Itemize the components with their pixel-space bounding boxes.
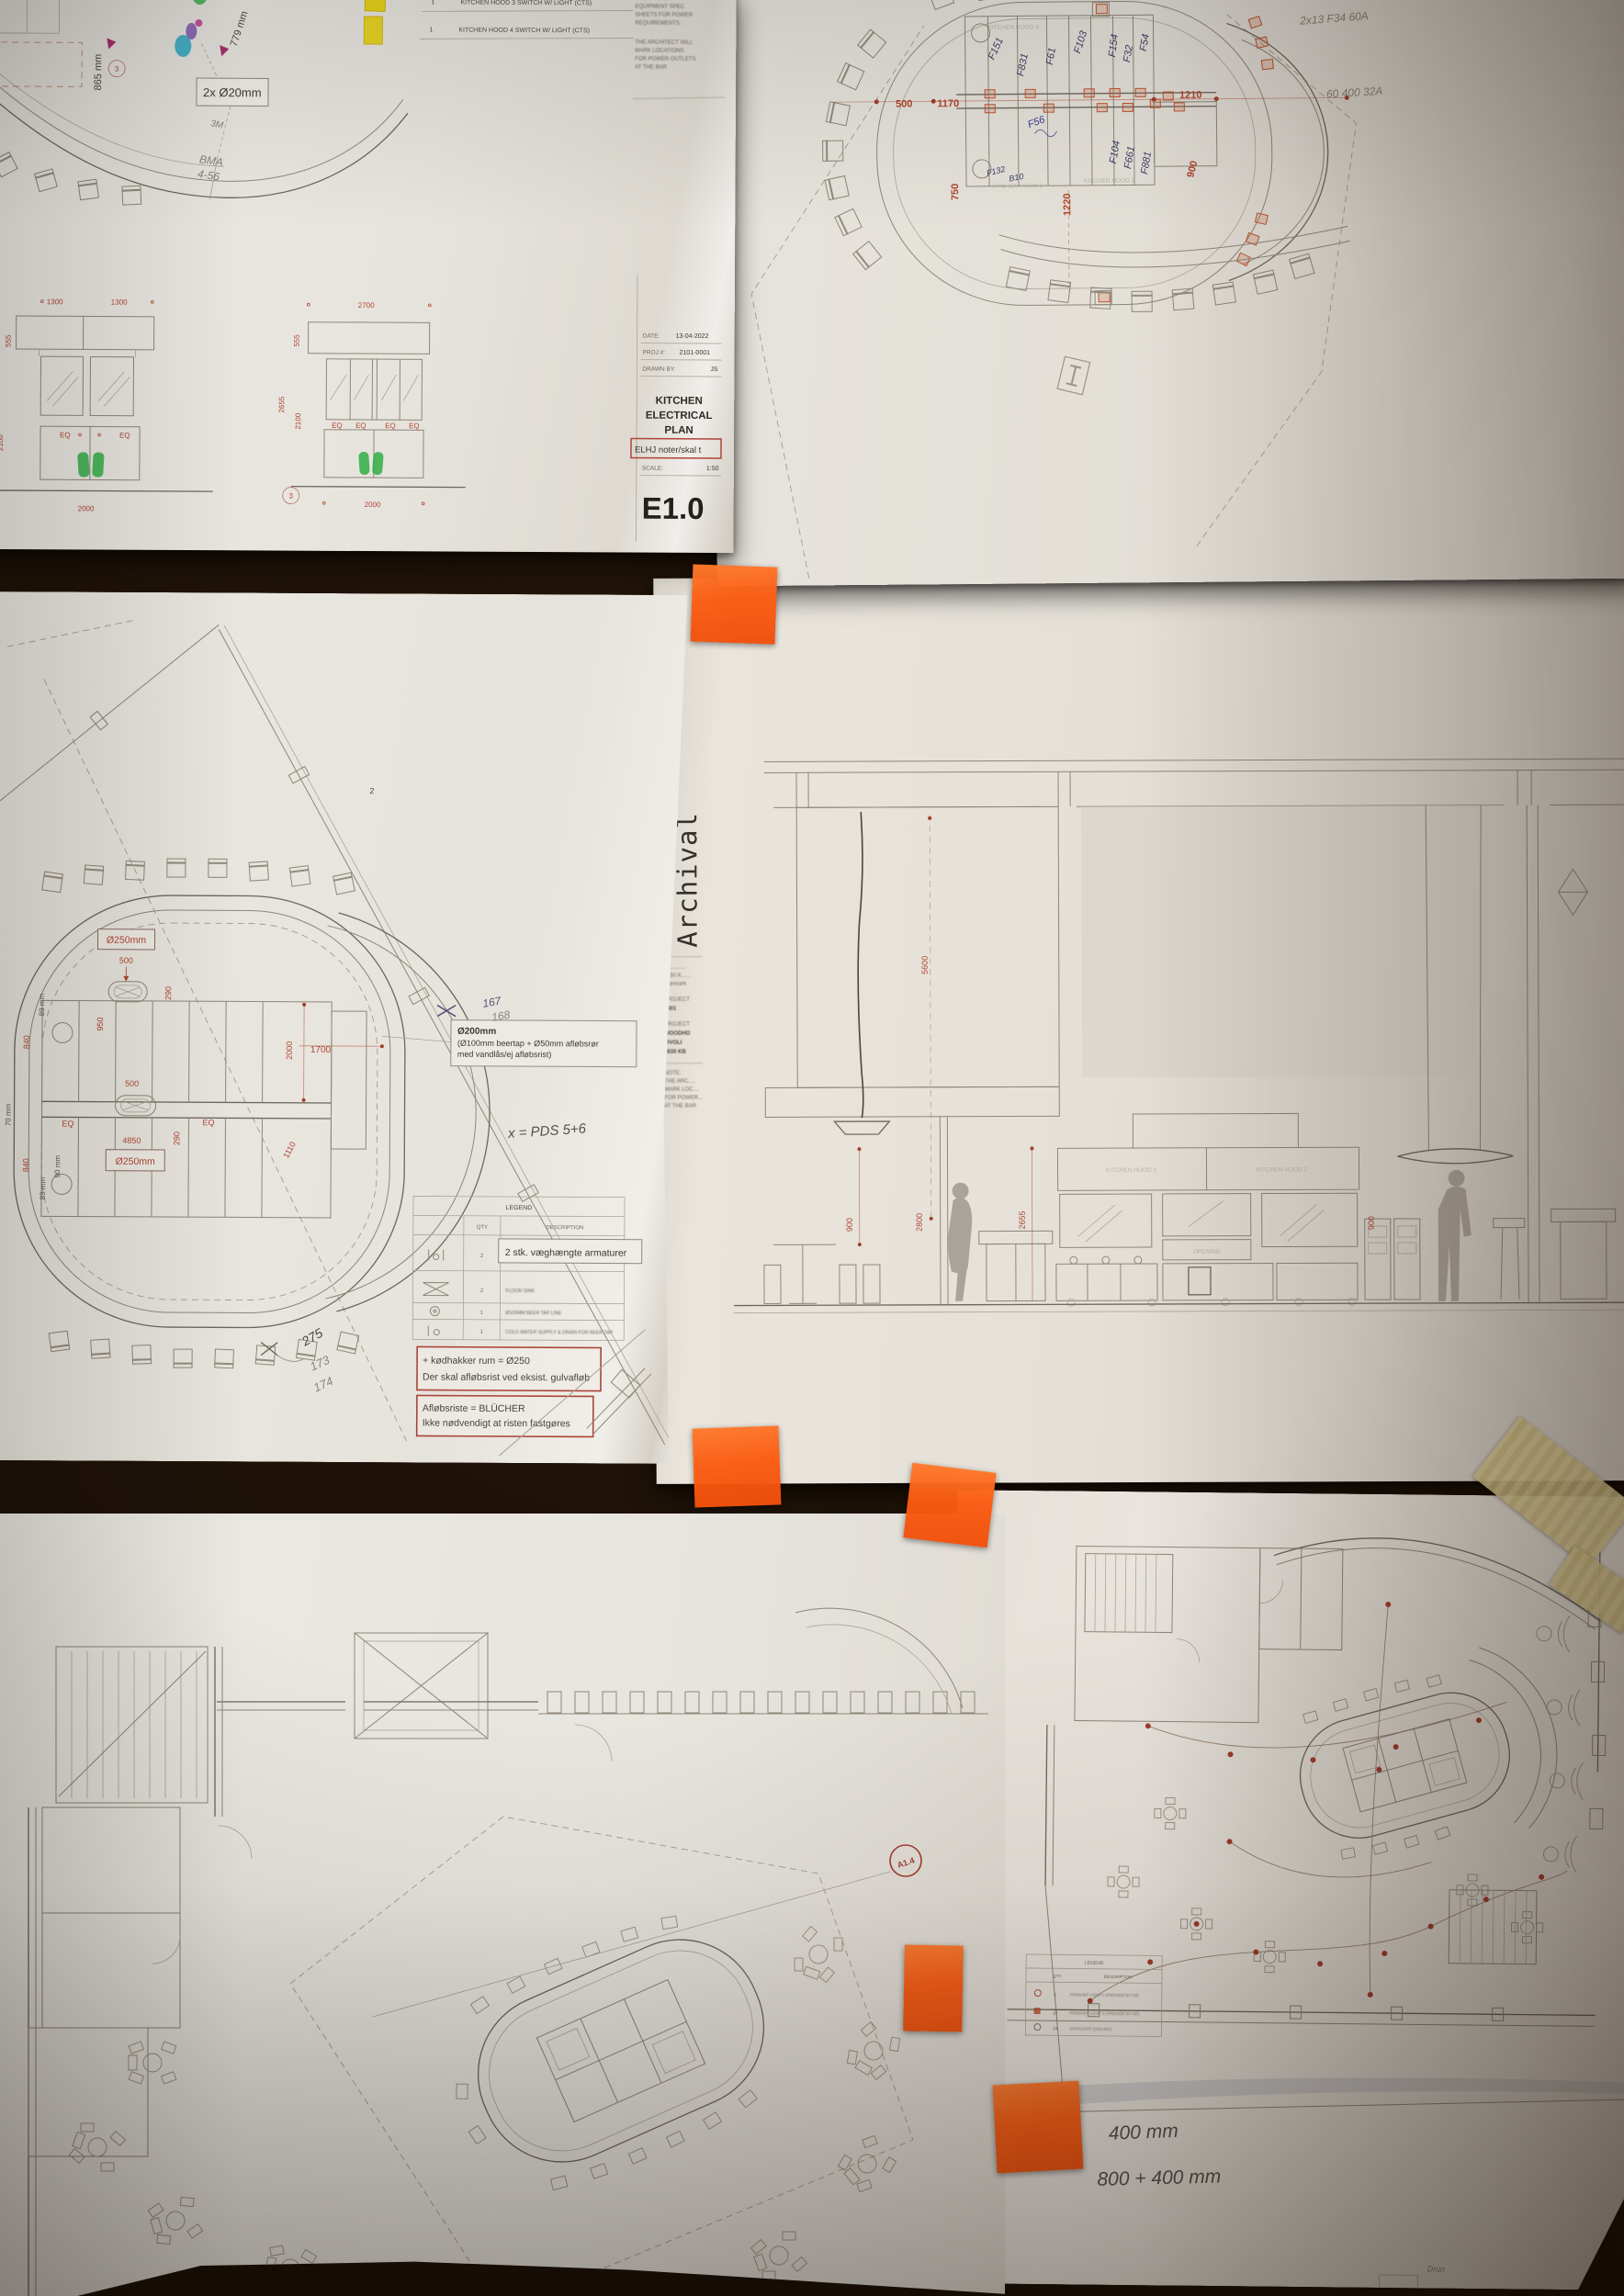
pendant-light-l-icon xyxy=(1034,1990,1041,1997)
note-line-1: Ø200mm xyxy=(457,1027,496,1037)
svg-text:275: 275 xyxy=(299,1325,325,1349)
svg-text:EQ: EQ xyxy=(62,1119,73,1128)
svg-text:F661: F661 xyxy=(1122,145,1137,170)
right-booths xyxy=(1534,1606,1607,1874)
photo-of-drawings-wall: 3 865 mm 779 mm 2x Ø20mm 3M BMA 4-56 1 K… xyxy=(0,0,1624,2296)
legend-desc-header: DESCRIPTION xyxy=(546,1225,583,1231)
svg-text:LEGEND: LEGEND xyxy=(1085,1961,1104,1966)
svg-text:FOR POWER...: FOR POWER... xyxy=(664,1096,703,1101)
svg-text:1: 1 xyxy=(480,1330,484,1335)
svg-text:NOTE:: NOTE: xyxy=(664,1071,682,1076)
banquette-modules xyxy=(547,1692,975,1713)
opening-label: OPENING xyxy=(1193,1249,1221,1255)
svg-text:1630 KB: 1630 KB xyxy=(664,1050,686,1055)
conduit-label: 2x Ø20mm xyxy=(203,85,262,99)
drawn-value: JS xyxy=(710,366,718,373)
beer-tap-line-icon xyxy=(430,1307,439,1316)
svg-text:THE ARC.....: THE ARC..... xyxy=(664,1079,696,1085)
dashed-boundary xyxy=(290,1817,913,2296)
hw-note-1: 2x13 F34 60A xyxy=(1299,9,1370,28)
svg-text:F56: F56 xyxy=(1026,114,1047,130)
legend-title: LEGEND xyxy=(506,1205,533,1211)
cafe-tables xyxy=(764,1244,880,1303)
svg-text:500: 500 xyxy=(119,956,133,965)
hw-note-2: 60 400 32A xyxy=(1326,84,1383,101)
stage-box xyxy=(355,1633,488,1739)
hw-drun: Drun xyxy=(1427,2265,1446,2274)
svg-text:THE ARCHITECT WILL: THE ARCHITECT WILL xyxy=(635,40,694,46)
standing-person xyxy=(1438,1170,1472,1301)
highlighter-marks xyxy=(175,0,207,57)
stamp-icon xyxy=(1057,356,1090,395)
lighting-legend: LEGEND QTY DESCRIPTION 1 PENDANT LIGHT L… xyxy=(1025,1954,1162,2037)
red-note-2: Afløbsriste = BLÜCHER Ikke nødvendigt at… xyxy=(417,1395,593,1436)
curved-banquette xyxy=(795,1608,963,1708)
central-bar xyxy=(419,1890,799,2220)
dim-779: 779 mm xyxy=(229,10,251,49)
drawn-label: DRAWN BY: xyxy=(642,366,675,373)
svg-text:FOR POWER OUTLETS: FOR POWER OUTLETS xyxy=(635,57,695,62)
hood2-label: KITCHEN HOOD 2 xyxy=(1084,177,1135,184)
dim-5600: 5600 xyxy=(920,956,930,974)
dimensions: Ø250mm 500 950 840 89 mm 70 mm 840 89 mm… xyxy=(4,929,385,1201)
dim: EQ xyxy=(332,422,343,430)
svg-text:840: 840 xyxy=(22,1035,31,1049)
plumbing-plan-drawing: 2 xyxy=(0,591,687,1464)
green-highlight xyxy=(193,0,208,5)
svg-text:F54: F54 xyxy=(1138,33,1152,52)
svg-text:12: 12 xyxy=(1053,2010,1058,2016)
dim: EQ xyxy=(409,422,420,430)
back-counter xyxy=(998,226,1350,312)
hw-800-400mm: 800 + 400 mm xyxy=(1097,2166,1221,2189)
orange-tape xyxy=(903,1463,996,1548)
stairs xyxy=(56,1647,208,1803)
hw-3m: 3M xyxy=(209,118,224,130)
svg-text:F103: F103 xyxy=(1072,28,1089,54)
dim: EQ xyxy=(385,422,396,430)
svg-text:THE KITCHEN: THE KITCHEN xyxy=(636,0,672,2)
spotlight-icon xyxy=(1034,2024,1041,2031)
date-label: DATE: xyxy=(643,333,660,340)
svg-text:90 mm: 90 mm xyxy=(53,1155,62,1178)
dim-1170: 1170 xyxy=(937,98,959,109)
dim-750: 750 xyxy=(950,184,961,200)
svg-text:2000: 2000 xyxy=(285,1041,294,1060)
legend-qty-header: QTY xyxy=(477,1225,488,1231)
dim-1220: 1220 xyxy=(1062,193,1073,216)
stairs-right xyxy=(1449,1890,1537,1964)
svg-text:AT THE BAR: AT THE BAR xyxy=(635,65,667,71)
svg-text:4850: 4850 xyxy=(122,1136,141,1145)
svg-text:Ø250mm: Ø250mm xyxy=(107,935,146,946)
floor-plan-drawing: A1.4 xyxy=(0,1514,1005,2296)
grid-mark-2: 2 xyxy=(369,786,374,795)
bar-stools-right xyxy=(1494,1209,1616,1299)
arrow-icon xyxy=(220,45,229,56)
kitchen-hoods: KITCHEN HOOD 1 KITCHEN HOOD 2 OPENING xyxy=(1055,1113,1359,1306)
hw-275-173-174: 275 173 174 xyxy=(261,1325,335,1395)
svg-text:500: 500 xyxy=(125,1079,139,1088)
dim-500: 500 xyxy=(896,98,912,109)
dim: 2100 xyxy=(294,412,302,429)
cutoff-label-box xyxy=(1379,2275,1417,2288)
general-notes: THE KITCHEN EQUIPMENT SPEC SHEETS FOR PO… xyxy=(633,0,726,99)
svg-text:F151: F151 xyxy=(987,36,1006,62)
svg-text:1: 1 xyxy=(480,1311,484,1316)
sheet-oval-bar-electrical: 500 1170 1210 750 1220 900 KITCHEN HOOD … xyxy=(712,0,1624,586)
svg-text:COLD WATER SUPPLY & DRAIN FOR: COLD WATER SUPPLY & DRAIN FOR BEER TAP xyxy=(505,1330,614,1336)
bubble-a14: A1.4 xyxy=(897,1856,916,1870)
proj-value: 2101-0001 xyxy=(680,350,711,356)
svg-text:SHEETS FOR POWER: SHEETS FOR POWER xyxy=(635,13,693,18)
floor-drain-icon xyxy=(108,982,147,1002)
svg-text:Der skal afløbsrist ved eksist: Der skal afløbsrist ved eksist. gulvaflø… xyxy=(423,1371,590,1383)
svg-text:Ø100MM BEER TAP LINE: Ø100MM BEER TAP LINE xyxy=(505,1311,561,1316)
sheet-floor-plan: A1.4 xyxy=(0,1514,1005,2296)
svg-text:F61: F61 xyxy=(1044,47,1058,66)
oval-bar-electrical-drawing: 500 1170 1210 750 1220 900 KITCHEN HOOD … xyxy=(712,0,1624,586)
dim: 2700 xyxy=(358,301,375,310)
svg-text:DESCRIPTION: DESCRIPTION xyxy=(1104,1975,1133,1979)
hood3-label: KITCHEN HOOD 3 xyxy=(988,24,1040,30)
bar-counter-left xyxy=(979,1231,1053,1300)
outer-walls xyxy=(1006,1546,1600,2158)
svg-text:89 mm: 89 mm xyxy=(39,1177,47,1200)
schedule-desc-2: KITCHEN HOOD 4 SWITCH W/ LIGHT (CTS) xyxy=(458,28,590,35)
svg-text:1: 1 xyxy=(1054,1992,1056,1998)
diamond-motif-icon xyxy=(1558,869,1587,915)
svg-text:89 mm: 89 mm xyxy=(38,994,46,1017)
note-line-3: med vandlås/ej afløbsrist) xyxy=(457,1050,552,1060)
dim-900: 900 xyxy=(1185,160,1200,179)
sheet-section-elevation: Archival B............ 2450 K...... Danm… xyxy=(653,575,1624,1484)
svg-text:2: 2 xyxy=(480,1289,484,1294)
rooms-top xyxy=(1075,1546,1343,1723)
scale-label: SCALE: xyxy=(642,466,663,472)
dim: 2000 xyxy=(78,504,95,512)
orange-tape xyxy=(903,1944,964,2032)
svg-text:MARK LOCATIONS: MARK LOCATIONS xyxy=(635,49,683,54)
sheet-title-2: ELECTRICAL xyxy=(646,411,713,422)
switch-schedule: 1 KITCHEN HOOD 3 SWITCH W/ LIGHT (CTS) 1… xyxy=(420,0,633,40)
dim: 2000 xyxy=(365,501,381,509)
bar-chairs xyxy=(39,858,361,1368)
dim-2800: 2800 xyxy=(915,1213,924,1232)
legend-table: LEGEND QTY DESCRIPTION 2 COLD/HOT WATER … xyxy=(412,1196,642,1340)
svg-text:WOODHO: WOODHO xyxy=(664,1031,691,1037)
hw-167-168: 167 168 xyxy=(437,994,512,1024)
svg-text:70 mm: 70 mm xyxy=(4,1103,12,1126)
bubble: 3 xyxy=(288,492,293,501)
wiring-and-lights xyxy=(1088,1599,1571,2009)
bar-chairs-left xyxy=(821,0,1001,270)
hood-elevation-right: 3 2700 555 2655 2100 EQ EQ EQ EQ 2000 xyxy=(277,301,467,510)
svg-text:Afløbsriste = BLÜCHER: Afløbsriste = BLÜCHER xyxy=(423,1402,525,1414)
svg-text:B10: B10 xyxy=(1009,172,1025,184)
svg-text:EQ: EQ xyxy=(202,1118,214,1127)
svg-text:PENDANT LIGHT L (PROVIDE BY KR: PENDANT LIGHT L (PROVIDE BY KR) xyxy=(1070,1992,1140,1998)
cyan-highlight xyxy=(175,35,191,57)
sheet-title-1: KITCHEN xyxy=(656,396,703,407)
hood1-label: KITCHEN HOOD 1 xyxy=(992,183,1043,189)
schedule-qty-2: 1 xyxy=(429,27,433,33)
note-line-2: (Ø100mm beertap + Ø50mm afløbsrør xyxy=(457,1039,599,1049)
dim-865: 865 mm xyxy=(93,54,104,91)
sheet-kitchen-electrical-plan: 3 865 mm 779 mm 2x Ø20mm 3M BMA 4-56 1 K… xyxy=(0,0,737,553)
svg-text:+ kødhakker rum = Ø250: + kødhakker rum = Ø250 xyxy=(423,1355,530,1367)
svg-text:REQUIREMENTS.: REQUIREMENTS. xyxy=(635,21,681,27)
sheet-plumbing-plan: 2 xyxy=(0,591,687,1464)
svg-text:AT THE BAR: AT THE BAR xyxy=(664,1104,696,1109)
dim: 2655 xyxy=(277,396,286,412)
dim: 555 xyxy=(293,334,301,347)
ceiling-structure xyxy=(764,759,1624,807)
bar-chairs xyxy=(0,152,141,206)
arrow-icon xyxy=(107,39,116,50)
svg-text:2: 2 xyxy=(480,1254,484,1259)
dim: 1300 xyxy=(47,298,63,306)
pendant-light-s-icon xyxy=(1034,2008,1041,2014)
dim-1210: 1210 xyxy=(1179,90,1202,101)
armatur-overlay-text: 2 stk. væghængte armaturer xyxy=(505,1247,627,1259)
dim: 555 xyxy=(5,334,13,347)
fryer-stack xyxy=(1365,1219,1420,1300)
svg-text:F104: F104 xyxy=(1108,140,1122,164)
svg-text:840: 840 xyxy=(21,1158,30,1172)
bubble-3: 3 xyxy=(115,65,119,73)
booth-clusters xyxy=(68,1925,904,2296)
sheet-title-3: PLAN xyxy=(664,425,693,436)
yellow-tab xyxy=(365,0,386,12)
bar-oval-outline xyxy=(13,895,491,1329)
dim: 2100 xyxy=(0,434,5,451)
svg-text:Ikke nødvendigt at risten fast: Ikke nødvendigt at risten fastgøres xyxy=(423,1417,570,1429)
scale-value: 1:50 xyxy=(706,466,719,472)
dim-900-right: 900 xyxy=(1367,1216,1376,1230)
section-drawing: Archival B............ 2450 K...... Danm… xyxy=(653,575,1624,1484)
beer-tap-supply-icon xyxy=(428,1326,439,1336)
orange-tape xyxy=(691,564,778,644)
date-value: 13-04-2022 xyxy=(676,333,709,340)
magenta-highlight xyxy=(195,19,202,27)
svg-text:174: 174 xyxy=(311,1374,335,1395)
svg-text:14: 14 xyxy=(1053,2026,1058,2032)
dim: EQ xyxy=(119,432,130,440)
hood-elevation-left: 1300 1300 555 2100 EQ EQ 2000 xyxy=(0,298,214,513)
dim: EQ xyxy=(60,431,71,439)
orange-tape xyxy=(993,2081,1084,2174)
hw-bma: BMA xyxy=(198,152,224,169)
electrical-plan-drawing: 3 865 mm 779 mm 2x Ø20mm 3M BMA 4-56 1 K… xyxy=(0,0,737,553)
red-note-text: ELHJ noter/skal t xyxy=(635,445,702,456)
svg-text:290: 290 xyxy=(164,986,173,1000)
dim: EQ xyxy=(355,422,367,430)
svg-text:290: 290 xyxy=(172,1131,181,1145)
orange-tape xyxy=(693,1425,782,1507)
hood1-label: KITCHEN HOOD 1 xyxy=(1106,1167,1157,1174)
hw-456: 4-56 xyxy=(197,167,220,183)
drawn-band xyxy=(1010,2074,1624,2120)
svg-text:1110: 1110 xyxy=(281,1140,298,1159)
floor-sink-icon xyxy=(423,1282,448,1295)
title-block: DATE: 13-04-2022 PROJ #: 2101-0001 DRAWN… xyxy=(630,276,722,543)
svg-text:950: 950 xyxy=(96,1018,105,1031)
svg-text:MARK LOC....: MARK LOC.... xyxy=(664,1087,699,1093)
yellow-tab xyxy=(364,17,382,44)
schedule-desc-1: KITCHEN HOOD 3 SWITCH W/ LIGHT (CTS) xyxy=(461,0,592,6)
dashed-boundary xyxy=(749,13,1359,579)
svg-text:QTY: QTY xyxy=(1053,1974,1061,1978)
svg-text:FLOOR SINK: FLOOR SINK xyxy=(505,1289,535,1294)
svg-text:SPOTLIGHT (CEILING): SPOTLIGHT (CEILING) xyxy=(1069,2026,1111,2031)
svg-text:Ø250mm: Ø250mm xyxy=(116,1156,155,1167)
svg-text:F132: F132 xyxy=(986,164,1006,178)
dim: 1300 xyxy=(111,298,128,307)
red-note-1: + kødhakker rum = Ø250 Der skal afløbsri… xyxy=(417,1346,601,1390)
svg-text:EQUIPMENT SPEC: EQUIPMENT SPEC xyxy=(635,5,684,10)
walls xyxy=(28,1647,988,2296)
svg-text:F154: F154 xyxy=(1107,34,1121,58)
hood2-label: KITCHEN HOOD 2 xyxy=(1257,1166,1308,1173)
oval-bar xyxy=(1278,1635,1577,1885)
hw-400mm: 400 mm xyxy=(1108,2121,1179,2144)
floor-drain-icon xyxy=(115,1096,155,1116)
dim-900-left: 900 xyxy=(845,1218,854,1232)
dim-2655: 2655 xyxy=(1018,1210,1027,1229)
sheet-number: E1.0 xyxy=(642,491,705,525)
pendant-lamp-left xyxy=(833,812,889,1134)
proj-label: PROJ #: xyxy=(643,350,666,356)
schedule-qty-1: 1 xyxy=(432,0,435,6)
svg-text:167: 167 xyxy=(481,994,502,1009)
svg-text:PENDANT LIGHT S (PROVIDE BY KR: PENDANT LIGHT S (PROVIDE BY KR) xyxy=(1070,2010,1140,2016)
svg-text:1700: 1700 xyxy=(310,1045,332,1055)
equipment-band xyxy=(41,981,367,1218)
hw-pds: x = PDS 5+6 xyxy=(507,1120,588,1142)
seated-person xyxy=(948,1183,973,1301)
svg-text:F881: F881 xyxy=(1139,151,1154,175)
